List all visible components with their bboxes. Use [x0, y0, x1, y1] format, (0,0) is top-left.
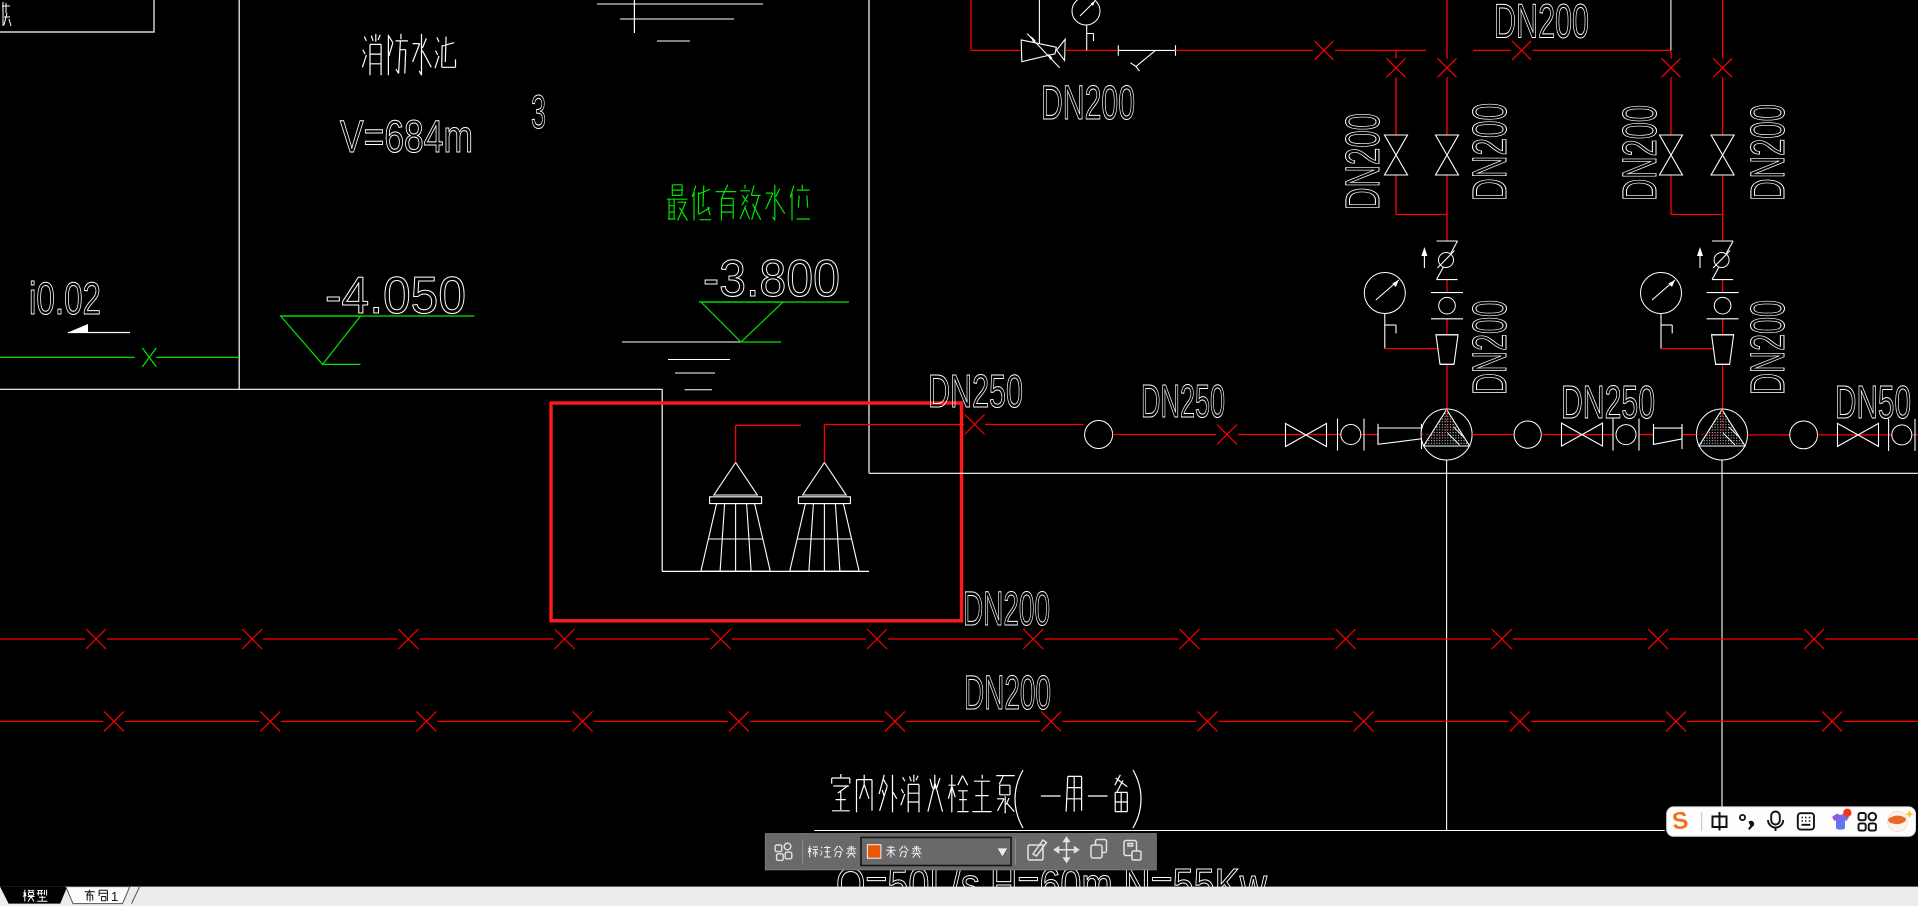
- svg-text:1: 1: [111, 889, 118, 904]
- svg-text:i0.02: i0.02: [29, 273, 101, 324]
- svg-text:-4.050: -4.050: [325, 267, 466, 325]
- svg-text:DN50: DN50: [1835, 376, 1911, 428]
- svg-text:S: S: [1671, 807, 1690, 836]
- svg-text:V=684m: V=684m: [340, 111, 473, 162]
- svg-text:DN200: DN200: [963, 583, 1050, 636]
- svg-text:DN200: DN200: [1494, 0, 1589, 49]
- svg-text:DN250: DN250: [1141, 375, 1225, 427]
- svg-text:DN200: DN200: [1742, 104, 1795, 201]
- svg-text:DN250: DN250: [928, 365, 1023, 417]
- svg-text:3: 3: [531, 85, 546, 138]
- svg-text:DN200: DN200: [1614, 105, 1667, 201]
- svg-text:DN200: DN200: [1464, 300, 1517, 395]
- svg-text:DN250: DN250: [1561, 376, 1655, 428]
- svg-text:DN200: DN200: [1464, 103, 1517, 201]
- svg-text:DN200: DN200: [1742, 300, 1795, 395]
- svg-text:DN200: DN200: [1041, 77, 1135, 130]
- svg-text:-3.800: -3.800: [703, 250, 840, 308]
- svg-text:DN200: DN200: [964, 667, 1051, 720]
- svg-text:DN200: DN200: [1337, 113, 1390, 210]
